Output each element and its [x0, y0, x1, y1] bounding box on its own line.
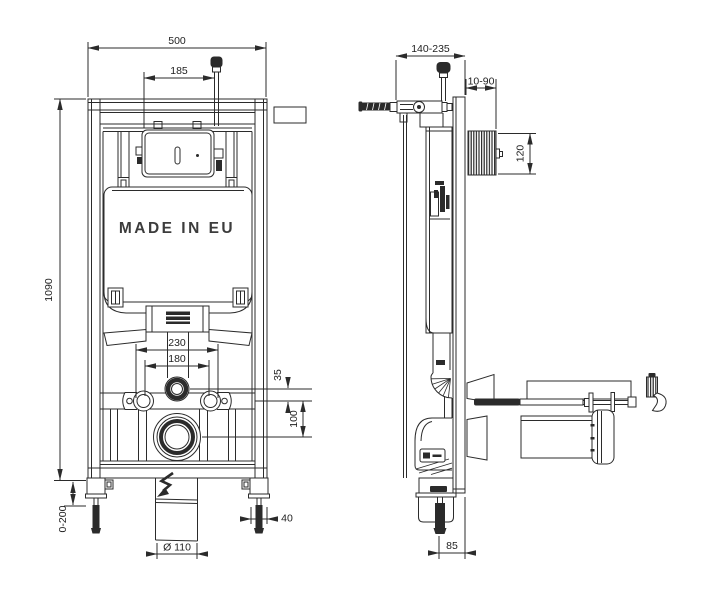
feet [86, 478, 270, 534]
dim-access-box-height: 120 [498, 134, 536, 175]
dim-foot-width: 40 [240, 507, 293, 525]
extension-pipe [521, 410, 614, 464]
dim-foot-adjustment: 0-200 [57, 482, 86, 532]
made-in-eu-stamp: MADE IN EU [119, 220, 235, 237]
technical-drawing: MADE IN EU [0, 0, 725, 600]
svg-text:85: 85 [446, 540, 458, 552]
svg-text:180: 180 [168, 353, 186, 365]
svg-text:0-200: 0-200 [57, 505, 69, 532]
dimensions-side: 140-235 10-90 120 85 [396, 43, 536, 559]
connector-sleeve-lower [467, 416, 487, 460]
threaded-plug [647, 373, 667, 411]
loose-parts [467, 373, 666, 464]
flow-arrow [162, 473, 174, 491]
side-view: 140-235 10-90 120 85 [359, 43, 667, 559]
cistern-profile [426, 127, 452, 373]
outlet-elbow [415, 418, 452, 475]
frame-profile [404, 115, 407, 478]
outlet-pipe [156, 473, 198, 541]
flush-pipe-connector [165, 377, 189, 401]
svg-text:100: 100 [288, 410, 300, 428]
dim-outlet-diameter: Ø 110 [146, 542, 208, 560]
wall-bracket-box [274, 107, 306, 123]
insulation-panel [527, 381, 631, 399]
bottom-crossbar [88, 468, 267, 478]
water-valve [359, 101, 453, 127]
svg-text:Ø 110: Ø 110 [163, 542, 191, 554]
flush-plate-duct [468, 131, 503, 175]
flush-bend [431, 373, 452, 418]
dim-axis-offset-small: 35 [272, 369, 288, 412]
svg-text:35: 35 [272, 369, 284, 381]
water-supply-pipe [211, 57, 222, 126]
dim-frame-depth: 140-235 [396, 43, 465, 100]
wall-plate [453, 97, 465, 493]
dim-frame-height: 1090 [43, 99, 86, 481]
svg-text:120: 120 [515, 145, 527, 163]
svg-text:500: 500 [168, 35, 186, 47]
outlet-socket [154, 414, 201, 461]
svg-text:185: 185 [170, 65, 188, 77]
dim-axis-offset-large: 100 [288, 401, 303, 437]
dim-supply-offset: 185 [144, 65, 214, 128]
svg-text:1090: 1090 [43, 278, 55, 302]
inspection-window [136, 130, 223, 177]
dim-wall-distance: 10-90 [466, 76, 496, 130]
supply-riser [437, 62, 451, 101]
svg-text:230: 230 [168, 337, 186, 349]
cistern: MADE IN EU [104, 187, 252, 378]
svg-text:10-90: 10-90 [468, 76, 495, 88]
side-foot [416, 478, 456, 534]
svg-text:40: 40 [281, 513, 293, 525]
svg-text:140-235: 140-235 [411, 43, 450, 55]
riser-cap [437, 62, 451, 73]
front-view: MADE IN EU [43, 35, 312, 559]
supply-cap [211, 57, 222, 67]
